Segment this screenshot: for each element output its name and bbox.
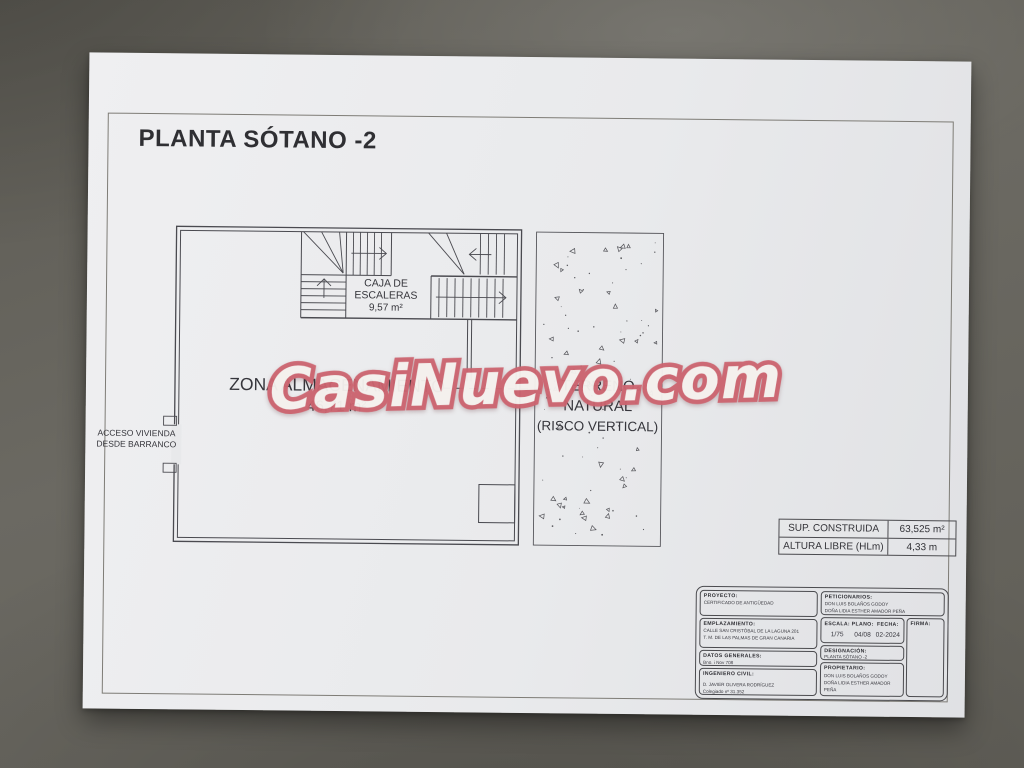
propietario-line2: DOÑA LIDIA ESTHER AMADOR PEÑA (824, 680, 900, 695)
designacion-box: DESIGNACIÓN: PLANTA SÓTANO -2 (820, 645, 904, 661)
terrain-label-2: NATURAL (563, 397, 632, 415)
escala-cell: ESCALA: 1/75 (824, 620, 850, 641)
table-cell-value: 63,525 m² (889, 524, 956, 536)
title-block-right-column: PETICIONARIOS: DON LUIS BOLAÑOS GODOY DO… (820, 591, 945, 697)
propietario-box: PROPIETARIO: DON LUIS BOLAÑOS GODOY DOÑA… (820, 662, 904, 697)
proyecto-value: CERTIFICADO DE ANTIGÜEDAD (704, 600, 814, 608)
escala-plano-fecha-box: ESCALA: 1/75 PLANO: 04/08 FECHA: 02-2024 (820, 617, 904, 644)
ingeniero-label: INGENIERO CIVIL: (703, 671, 813, 679)
access-label-1: ACCESO VIVIENDA (97, 428, 175, 439)
table-row: ALTURA LIBRE (HLm) 4,33 m (779, 537, 955, 556)
datos-generales-value: Bno. i Nov 708 (703, 660, 813, 667)
plano-label: PLANO: (850, 621, 875, 628)
propietario-label: PROPIETARIO: (824, 665, 900, 673)
plan-title: PLANTA SÓTANO -2 (138, 125, 376, 155)
plano-value: 04/08 (850, 631, 875, 641)
designacion-value: PLANTA SÓTANO -2 (824, 654, 900, 660)
datos-generales-box: DATOS GENERALES: Bno. i Nov 708 (699, 650, 817, 667)
emplazamiento-box: EMPLAZAMIENTO: CALLE SAN CRISTÓBAL DE LA… (699, 618, 817, 649)
firma-label: FIRMA: (910, 621, 940, 628)
table-cell-value: 4,33 m (888, 541, 955, 553)
escala-label: ESCALA: (824, 621, 850, 628)
emplazamiento-line2: T. M. DE LAS PALMAS DE GRAN CANARIA (703, 635, 813, 643)
title-block: PROYECTO: CERTIFICADO DE ANTIGÜEDAD EMPL… (695, 586, 949, 702)
terrain-label-3: (RISCO VERTICAL) (537, 418, 658, 434)
floor-plan: CAJA DE ESCALERAS 9,57 m² ZONA ALMACENAM… (93, 217, 687, 563)
stairs-label-2: ESCALERAS (354, 289, 417, 302)
area-summary-table: SUP. CONSTRUIDA 63,525 m² ALTURA LIBRE (… (778, 519, 956, 557)
title-block-left-column: PROYECTO: CERTIFICADO DE ANTIGÜEDAD EMPL… (699, 590, 818, 696)
plano-cell: PLANO: 04/08 (850, 620, 875, 641)
stairs-area: 9,57 m² (369, 302, 404, 313)
access-label-2: DESDE BARRANCO (96, 438, 176, 449)
table-cell-label: SUP. CONSTRUIDA (779, 520, 888, 538)
fecha-value: 02-2024 (875, 631, 900, 641)
photo-background: PLANTA SÓTANO -2 (0, 0, 1024, 768)
storage-label: ZONA ALMACENAMIENTO (229, 374, 445, 396)
table-row: SUP. CONSTRUIDA 63,525 m² (779, 520, 955, 539)
terrain-label-1: TERRENO (561, 377, 635, 395)
ingeniero-line2: Colegiado nº 31.352 (703, 688, 813, 696)
stairs-label-1: CAJA DE (364, 277, 408, 289)
table-cell-label: ALTURA LIBRE (HLm) (779, 538, 888, 555)
peticionarios-box: PETICIONARIOS: DON LUIS BOLAÑOS GODOY DO… (821, 591, 945, 616)
title-block-lower-right: ESCALA: 1/75 PLANO: 04/08 FECHA: 02-2024 (820, 617, 945, 698)
peticionarios-line2: DOÑA LIDIA ESTHER AMADOR PEÑA (825, 608, 941, 616)
fecha-label: FECHA: (875, 621, 900, 628)
proyecto-box: PROYECTO: CERTIFICADO DE ANTIGÜEDAD (700, 590, 818, 617)
ingeniero-box: INGENIERO CIVIL: D. JAVIER OLIVERA RODRÍ… (699, 668, 817, 696)
paper-sheet: PLANTA SÓTANO -2 (83, 52, 972, 717)
escala-value: 1/75 (824, 630, 850, 640)
fecha-cell: FECHA: 02-2024 (875, 620, 900, 641)
storage-area: 46,71 m² (307, 398, 366, 416)
firma-box: FIRMA: (906, 618, 945, 698)
